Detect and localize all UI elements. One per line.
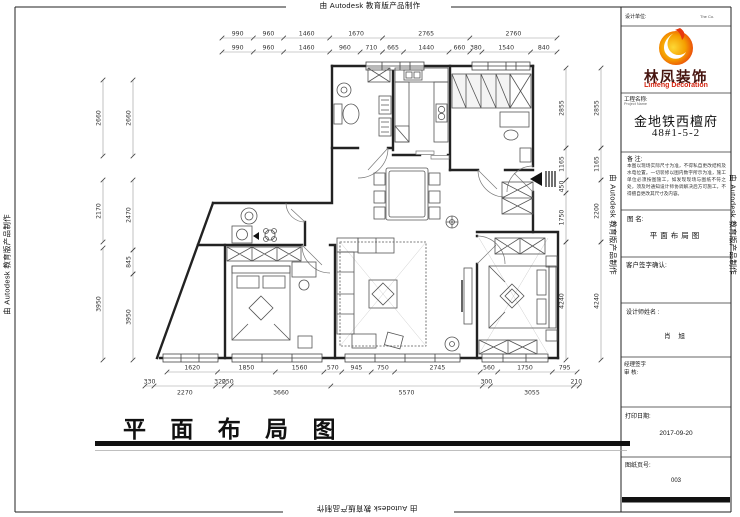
dimension-row-bottom-1: 16201850156057094575027455601750795 [165, 365, 580, 375]
print-date-label: 打印日期: [625, 411, 651, 420]
autodesk-watermark-top: 由 Autodesk 教育版产品制作 [290, 0, 450, 11]
entry-wardrobe [502, 182, 533, 214]
dimension-row-bottom-2: 3302270320250366055703003055210 [143, 379, 583, 397]
dimension-label: 960 [263, 45, 275, 52]
design-unit-label: 设计单位: [625, 13, 646, 20]
dimension-label: 2745 [430, 365, 446, 372]
dimension-label: 210 [570, 379, 582, 386]
title-block-bottom-bar [622, 497, 730, 503]
phoenix-flame-icon [653, 27, 699, 67]
dimension-column-left-inner: 266024708453950 [126, 78, 136, 363]
dimension-label: 250 [222, 379, 234, 386]
entry-arrow [530, 171, 555, 187]
window [232, 354, 322, 362]
dimension-label: 960 [263, 31, 275, 38]
dimension-label: 5570 [399, 390, 415, 397]
dimension-label: 1440 [418, 45, 434, 52]
bathroom-2-fixtures [232, 208, 277, 243]
desk-2 [292, 262, 316, 290]
dimension-label: 4240 [559, 293, 566, 309]
bathroom-1-fixtures [334, 68, 391, 136]
dimension-label: 2170 [96, 203, 103, 219]
dining-set [374, 168, 458, 228]
window [482, 354, 548, 362]
dimension-label: 2200 [594, 203, 601, 219]
dimension-column-left-outer: 266021703950 [96, 78, 106, 363]
dimension-label: 2855 [559, 100, 566, 116]
dimension-label: 2660 [96, 110, 103, 126]
dimension-label: 665 [387, 45, 399, 52]
bedroom2-furniture [227, 247, 316, 348]
project-label-en: Project Name [624, 102, 647, 106]
autodesk-text: 由 Autodesk 教育版产品制作 [3, 214, 12, 315]
dimension-label: 990 [232, 31, 244, 38]
dimension-label: 330 [144, 379, 156, 386]
bed-2 [232, 266, 290, 340]
project-unit-number: 48#1-5-2 [621, 127, 731, 139]
study-furniture [452, 74, 531, 162]
tv-cabinet [462, 268, 472, 324]
dimension-column-right-outer: 2855116522004240 [594, 66, 604, 363]
dimension-label: 795 [559, 365, 571, 372]
dimension-label: 3950 [126, 309, 133, 325]
plant-2 [264, 229, 277, 242]
review-label: 审 核: [624, 368, 638, 376]
dimension-label: 560 [483, 365, 495, 372]
window [163, 354, 218, 362]
dimension-row-top-1: 9909601460167027652760 [220, 31, 560, 41]
autodesk-text: 由 Autodesk 教育版产品制作 [320, 1, 421, 10]
dimension-label: 2270 [177, 390, 193, 397]
walls [157, 66, 558, 358]
dimension-label: 570 [327, 365, 339, 372]
dimension-label: 990 [232, 45, 244, 52]
autodesk-watermark-inner-right: 由 Autodesk 教育版产品制作 [608, 145, 619, 305]
design-unit-note: The Co. [700, 14, 714, 19]
dimension-label: 1670 [348, 31, 364, 38]
kitchen-sink [404, 70, 422, 80]
dimension-label: 2660 [126, 110, 133, 126]
dimension-label: 3055 [524, 390, 540, 397]
page-number-label: 图纸页号: [625, 460, 651, 469]
plant [446, 216, 458, 228]
desk [500, 112, 529, 140]
bed-master [489, 266, 556, 328]
dimension-label: 2855 [594, 100, 601, 116]
dimension-label: 4240 [594, 293, 601, 309]
dimension-label: 750 [377, 365, 389, 372]
dimension-label: 450 [559, 181, 566, 193]
dimension-label: 710 [365, 45, 377, 52]
drawing-sheet: 9909601460167027652760990960146096071066… [0, 0, 740, 517]
window [345, 354, 460, 362]
dimension-label: 1620 [184, 365, 200, 372]
living-room-furniture [337, 238, 472, 351]
dimension-label: 1750 [559, 210, 566, 226]
window [472, 62, 530, 70]
manager-signature-label: 经理签字 [624, 360, 646, 368]
dimension-label: 3660 [273, 390, 289, 397]
dimension-row-top-2: 990960146096071066514406603801540840 [220, 45, 560, 55]
autodesk-text: 由 Autodesk 教育版产品制作 [317, 504, 418, 513]
fridge [395, 126, 409, 142]
floor-lamp [445, 337, 459, 351]
logo-name-en: Linfeng Decoration [621, 82, 731, 89]
dimension-label: 1460 [299, 31, 315, 38]
kitchen-fixtures [395, 68, 448, 142]
dimension-label: 1165 [559, 156, 566, 172]
dimension-column-right-inner: 2855116545017504240 [559, 66, 569, 363]
print-date: 2017-09-20 [621, 430, 731, 437]
dimension-label: 1165 [594, 156, 601, 172]
drawing-name: 平面布局图 [621, 230, 731, 241]
washing-machine [232, 226, 252, 243]
autodesk-watermark-left: 由 Autodesk 教育版产品制作 [2, 185, 13, 345]
dimension-label: 2760 [506, 31, 522, 38]
designer-name: 肖 旭 [621, 330, 731, 340]
dimension-label: 660 [453, 45, 465, 52]
dimension-label: 3950 [96, 296, 103, 312]
sofa [337, 238, 394, 348]
dimension-label: 1460 [299, 45, 315, 52]
dimension-label: 2765 [418, 31, 434, 38]
dimension-label: 300 [480, 379, 492, 386]
dimension-label: 945 [351, 365, 363, 372]
dimension-label: 1850 [239, 365, 255, 372]
stove [436, 104, 447, 122]
dimension-label: 1750 [517, 365, 533, 372]
dimension-label: 845 [126, 256, 133, 268]
page-number: 003 [621, 478, 731, 484]
dimension-label: 380 [470, 45, 482, 52]
designer-label: 设计师姓名 : [626, 307, 659, 316]
autodesk-text: 由 Autodesk 教育版产品制作 [609, 174, 618, 275]
client-signature-label: 客户签字确认: [626, 259, 667, 269]
floor-plan: 9909601460167027652760990960146096071066… [96, 31, 604, 397]
dimension-label: 2470 [126, 207, 133, 223]
autodesk-watermark-right: 由 Autodesk 教育版产品制作 [728, 145, 739, 305]
autodesk-watermark-bottom: 由 Autodesk 教育版产品制作 [287, 503, 447, 514]
dimension-label: 1560 [292, 365, 308, 372]
dimension-label: 960 [339, 45, 351, 52]
main-title: 平 面 布 局 图 [123, 410, 345, 444]
dimension-label: 1540 [498, 45, 514, 52]
notes-text: 本图以现场实际尺寸为准，不得私自更改结构及水电位置。一切装修以图内数字所示为准，… [627, 162, 726, 198]
dimension-label: 840 [538, 45, 550, 52]
drawing-name-label: 图 名: [627, 213, 644, 223]
autodesk-text: 由 Autodesk 教育版产品制作 [729, 174, 738, 275]
master-bedroom-furniture [479, 238, 557, 354]
